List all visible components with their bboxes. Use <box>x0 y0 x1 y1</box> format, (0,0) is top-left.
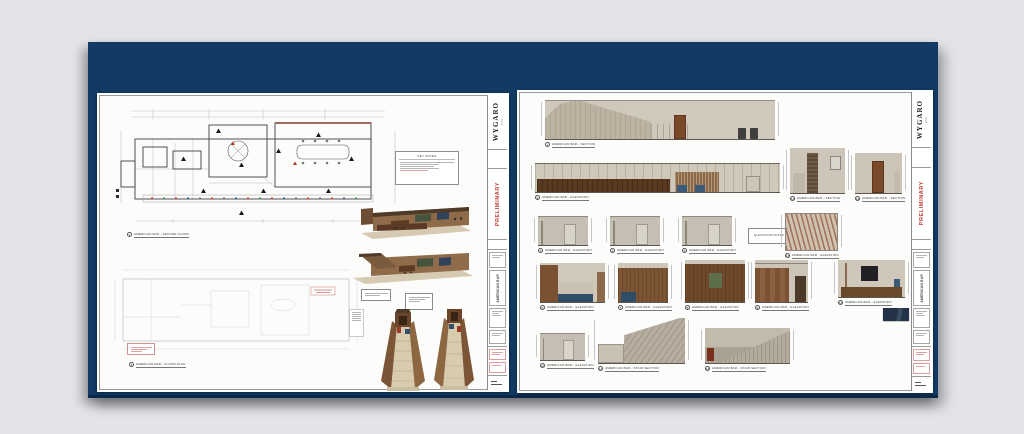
drawing-number-bubble: 2 <box>129 362 134 367</box>
elevation-tile: 5 AMERICAN BAR - ELEVATION <box>682 216 732 254</box>
render-thumbnail <box>883 308 909 321</box>
firm-logo: WYGARO 350 <box>488 95 507 150</box>
mini-schedule <box>349 309 364 337</box>
elevation-tile: 6 AMERICAN BAR - ELEVATION <box>540 263 605 311</box>
elevation-tile: 9 AMERICAN BAR - ELEVATION <box>755 260 808 311</box>
elevation-tile: 10 AMERICAN BAR - ELEVATION <box>540 333 585 369</box>
axon-render-middle <box>351 250 475 288</box>
drawing-caption: 2 AMERICAN BAR - ELEVATION <box>535 195 780 201</box>
stair-section-tile: 12 AMERICAN BAR - STAIR SECTION <box>705 328 790 372</box>
left-sheet-floor-plans[interactable]: KEY NOTES 1 AMERICAN BAR - SECOND FLOOR <box>97 93 509 392</box>
firm-logo: WYGARO 350 <box>912 92 931 148</box>
key-notes-legend: KEY NOTES <box>395 151 459 185</box>
elevation-tile: 3 AMERICAN BAR - ELEVATION <box>538 216 588 254</box>
section-detail-tile: 14 AMERICAN BAR - SECTION <box>855 153 902 202</box>
stair-section-tile: 11 AMERICAN BAR - STAIR SECTION <box>598 318 685 372</box>
render-note-box <box>361 289 391 301</box>
project-name: AMERICAN BAR <box>913 270 930 306</box>
drawing-caption: 2 AMERICAN BAR - FLOOR PLAN <box>129 362 186 368</box>
elevation-tile: 2 AMERICAN BAR - ELEVATION <box>535 163 780 201</box>
revision-stamp-area <box>488 347 507 376</box>
presentation-board: KEY NOTES 1 AMERICAN BAR - SECOND FLOOR <box>88 42 938 398</box>
perspective-render-right <box>433 304 475 390</box>
drawing-caption: 1 AMERICAN BAR - SECTION <box>545 142 775 148</box>
title-block-info: AMERICAN BAR <box>488 250 507 347</box>
elevation-tile: 8 AMERICAN BAR - ELEVATION <box>685 260 745 311</box>
paneled-wall-tile: 15 AMERICAN BAR - ELEVATION <box>785 213 838 259</box>
canvas: KEY NOTES 1 AMERICAN BAR - SECOND FLOOR <box>0 0 1024 434</box>
sheet-number-box <box>912 377 931 391</box>
perspective-render-left <box>377 307 429 391</box>
elevation-tile: 4 AMERICAN BAR - ELEVATION <box>610 216 660 254</box>
drawing-number-bubble: 1 <box>127 232 132 237</box>
elevation-tile: 1 AMERICAN BAR - SECTION <box>545 100 775 148</box>
title-block: WYGARO 350 PRELIMINARY AMERICAN BAR <box>487 95 507 390</box>
drawing-caption: 1 AMERICAN BAR - SECOND FLOOR <box>127 232 189 238</box>
title-block-info: AMERICAN BAR <box>912 250 931 347</box>
preliminary-stamp: PRELIMINARY <box>912 168 931 240</box>
revision-stamp-area <box>912 347 931 377</box>
section-detail-tile: 13 AMERICAN BAR - SECTION <box>790 148 845 202</box>
right-sheet-interior-elevations[interactable]: 1 AMERICAN BAR - SECTION 2 AMERICAN BAR … <box>517 90 933 393</box>
elevations-note-box: ELEVATIONS NOTED <box>748 228 790 244</box>
plan-note-box <box>127 343 155 355</box>
project-name: AMERICAN BAR <box>489 270 506 306</box>
title-block: WYGARO 350 PRELIMINARY AMERICAN BAR <box>911 92 931 391</box>
legend-title: KEY NOTES <box>399 154 455 160</box>
sheet-number-box <box>488 376 507 390</box>
tv-wall-tile: 16 AMERICAN BAR - ELEVATION <box>838 260 905 306</box>
axon-render-top <box>357 203 473 243</box>
elevation-tile: 7 AMERICAN BAR - ELEVATION <box>618 263 668 311</box>
preliminary-stamp: PRELIMINARY <box>488 169 507 240</box>
